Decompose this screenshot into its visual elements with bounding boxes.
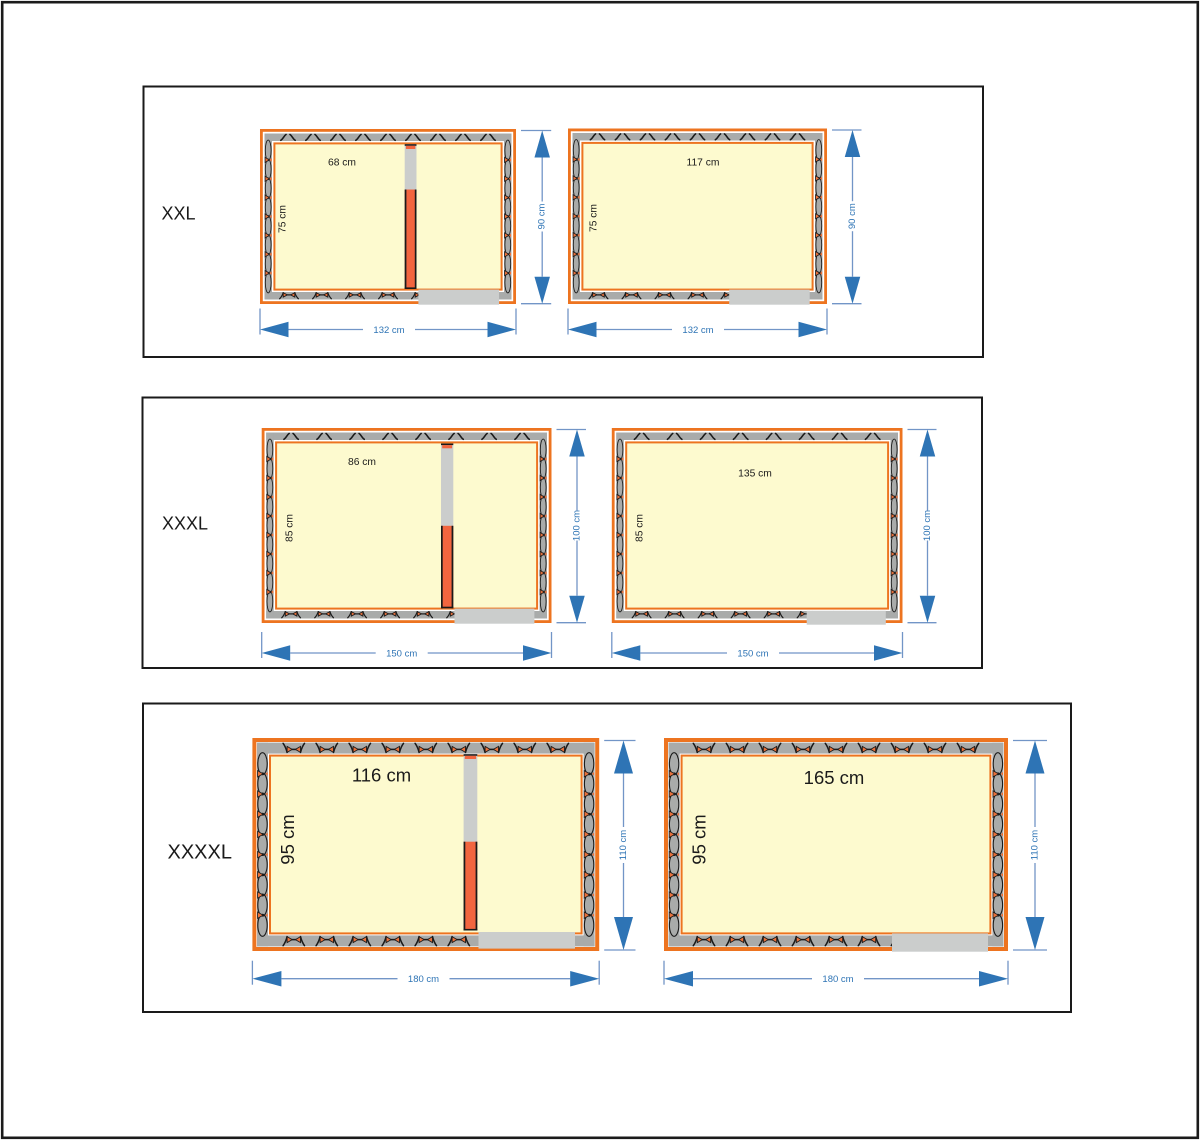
svg-text:180 cm: 180 cm [408,974,439,985]
svg-text:100 cm: 100 cm [572,510,583,541]
svg-text:XXXL: XXXL [162,514,208,534]
svg-text:90 cm: 90 cm [537,203,548,229]
svg-text:86 cm: 86 cm [348,457,376,468]
svg-text:132 cm: 132 cm [682,325,713,336]
svg-text:100 cm: 100 cm [922,510,933,541]
svg-text:85 cm: 85 cm [285,514,296,542]
svg-text:165 cm: 165 cm [804,767,865,788]
svg-text:95 cm: 95 cm [277,814,298,864]
svg-text:110 cm: 110 cm [1030,830,1041,861]
svg-text:75 cm: 75 cm [589,204,600,232]
svg-text:150 cm: 150 cm [737,649,768,660]
svg-text:95 cm: 95 cm [689,814,710,864]
svg-text:180 cm: 180 cm [822,974,853,985]
svg-text:110 cm: 110 cm [618,830,629,861]
svg-text:85 cm: 85 cm [635,514,646,542]
svg-text:68 cm: 68 cm [328,158,356,169]
svg-text:132 cm: 132 cm [373,325,404,336]
svg-text:150 cm: 150 cm [386,649,417,660]
svg-text:135 cm: 135 cm [738,469,772,480]
svg-text:116 cm: 116 cm [352,765,411,786]
svg-text:90 cm: 90 cm [847,203,858,229]
svg-text:XXL: XXL [162,204,196,224]
svg-text:75 cm: 75 cm [278,205,289,233]
svg-text:117 cm: 117 cm [686,158,719,169]
svg-text:XXXXL: XXXXL [168,842,232,864]
